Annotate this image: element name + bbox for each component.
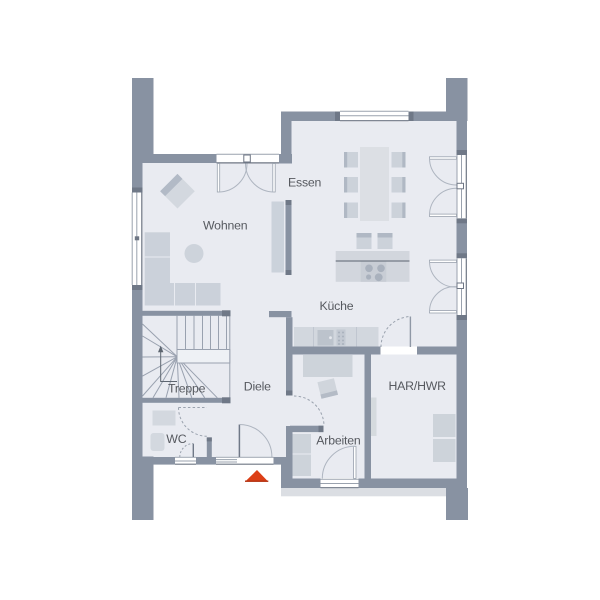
svg-text:HAR/HWR: HAR/HWR — [389, 379, 447, 393]
svg-text:Treppe: Treppe — [168, 381, 206, 395]
svg-text:Küche: Küche — [320, 299, 354, 313]
svg-text:WC: WC — [166, 432, 186, 446]
svg-text:Essen: Essen — [288, 176, 322, 190]
svg-text:Wohnen: Wohnen — [203, 218, 248, 232]
svg-text:Diele: Diele — [244, 380, 271, 394]
svg-text:Arbeiten: Arbeiten — [316, 433, 361, 447]
